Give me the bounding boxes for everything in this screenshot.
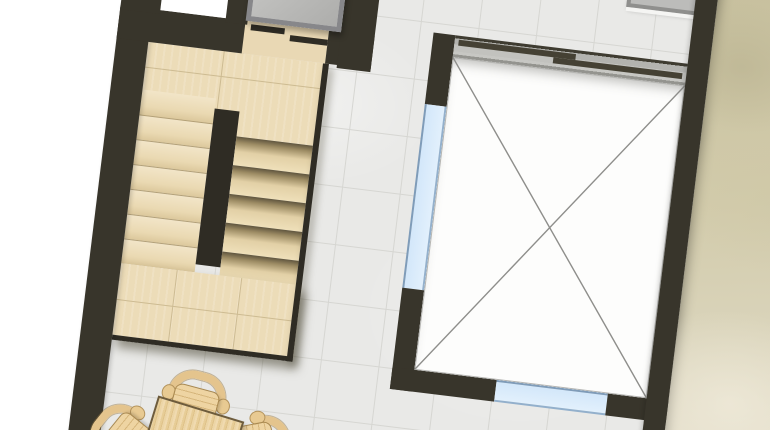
void-x-area [414, 57, 685, 398]
landing-joint-horizontal [145, 67, 324, 90]
door-track-dash [289, 35, 327, 46]
platform-joint-horizontal [117, 299, 298, 322]
door-track-dash [251, 24, 285, 34]
floor-plan-canvas [0, 0, 770, 430]
void-x-mark [414, 57, 685, 398]
rotated-plan-wrapper [0, 0, 770, 430]
